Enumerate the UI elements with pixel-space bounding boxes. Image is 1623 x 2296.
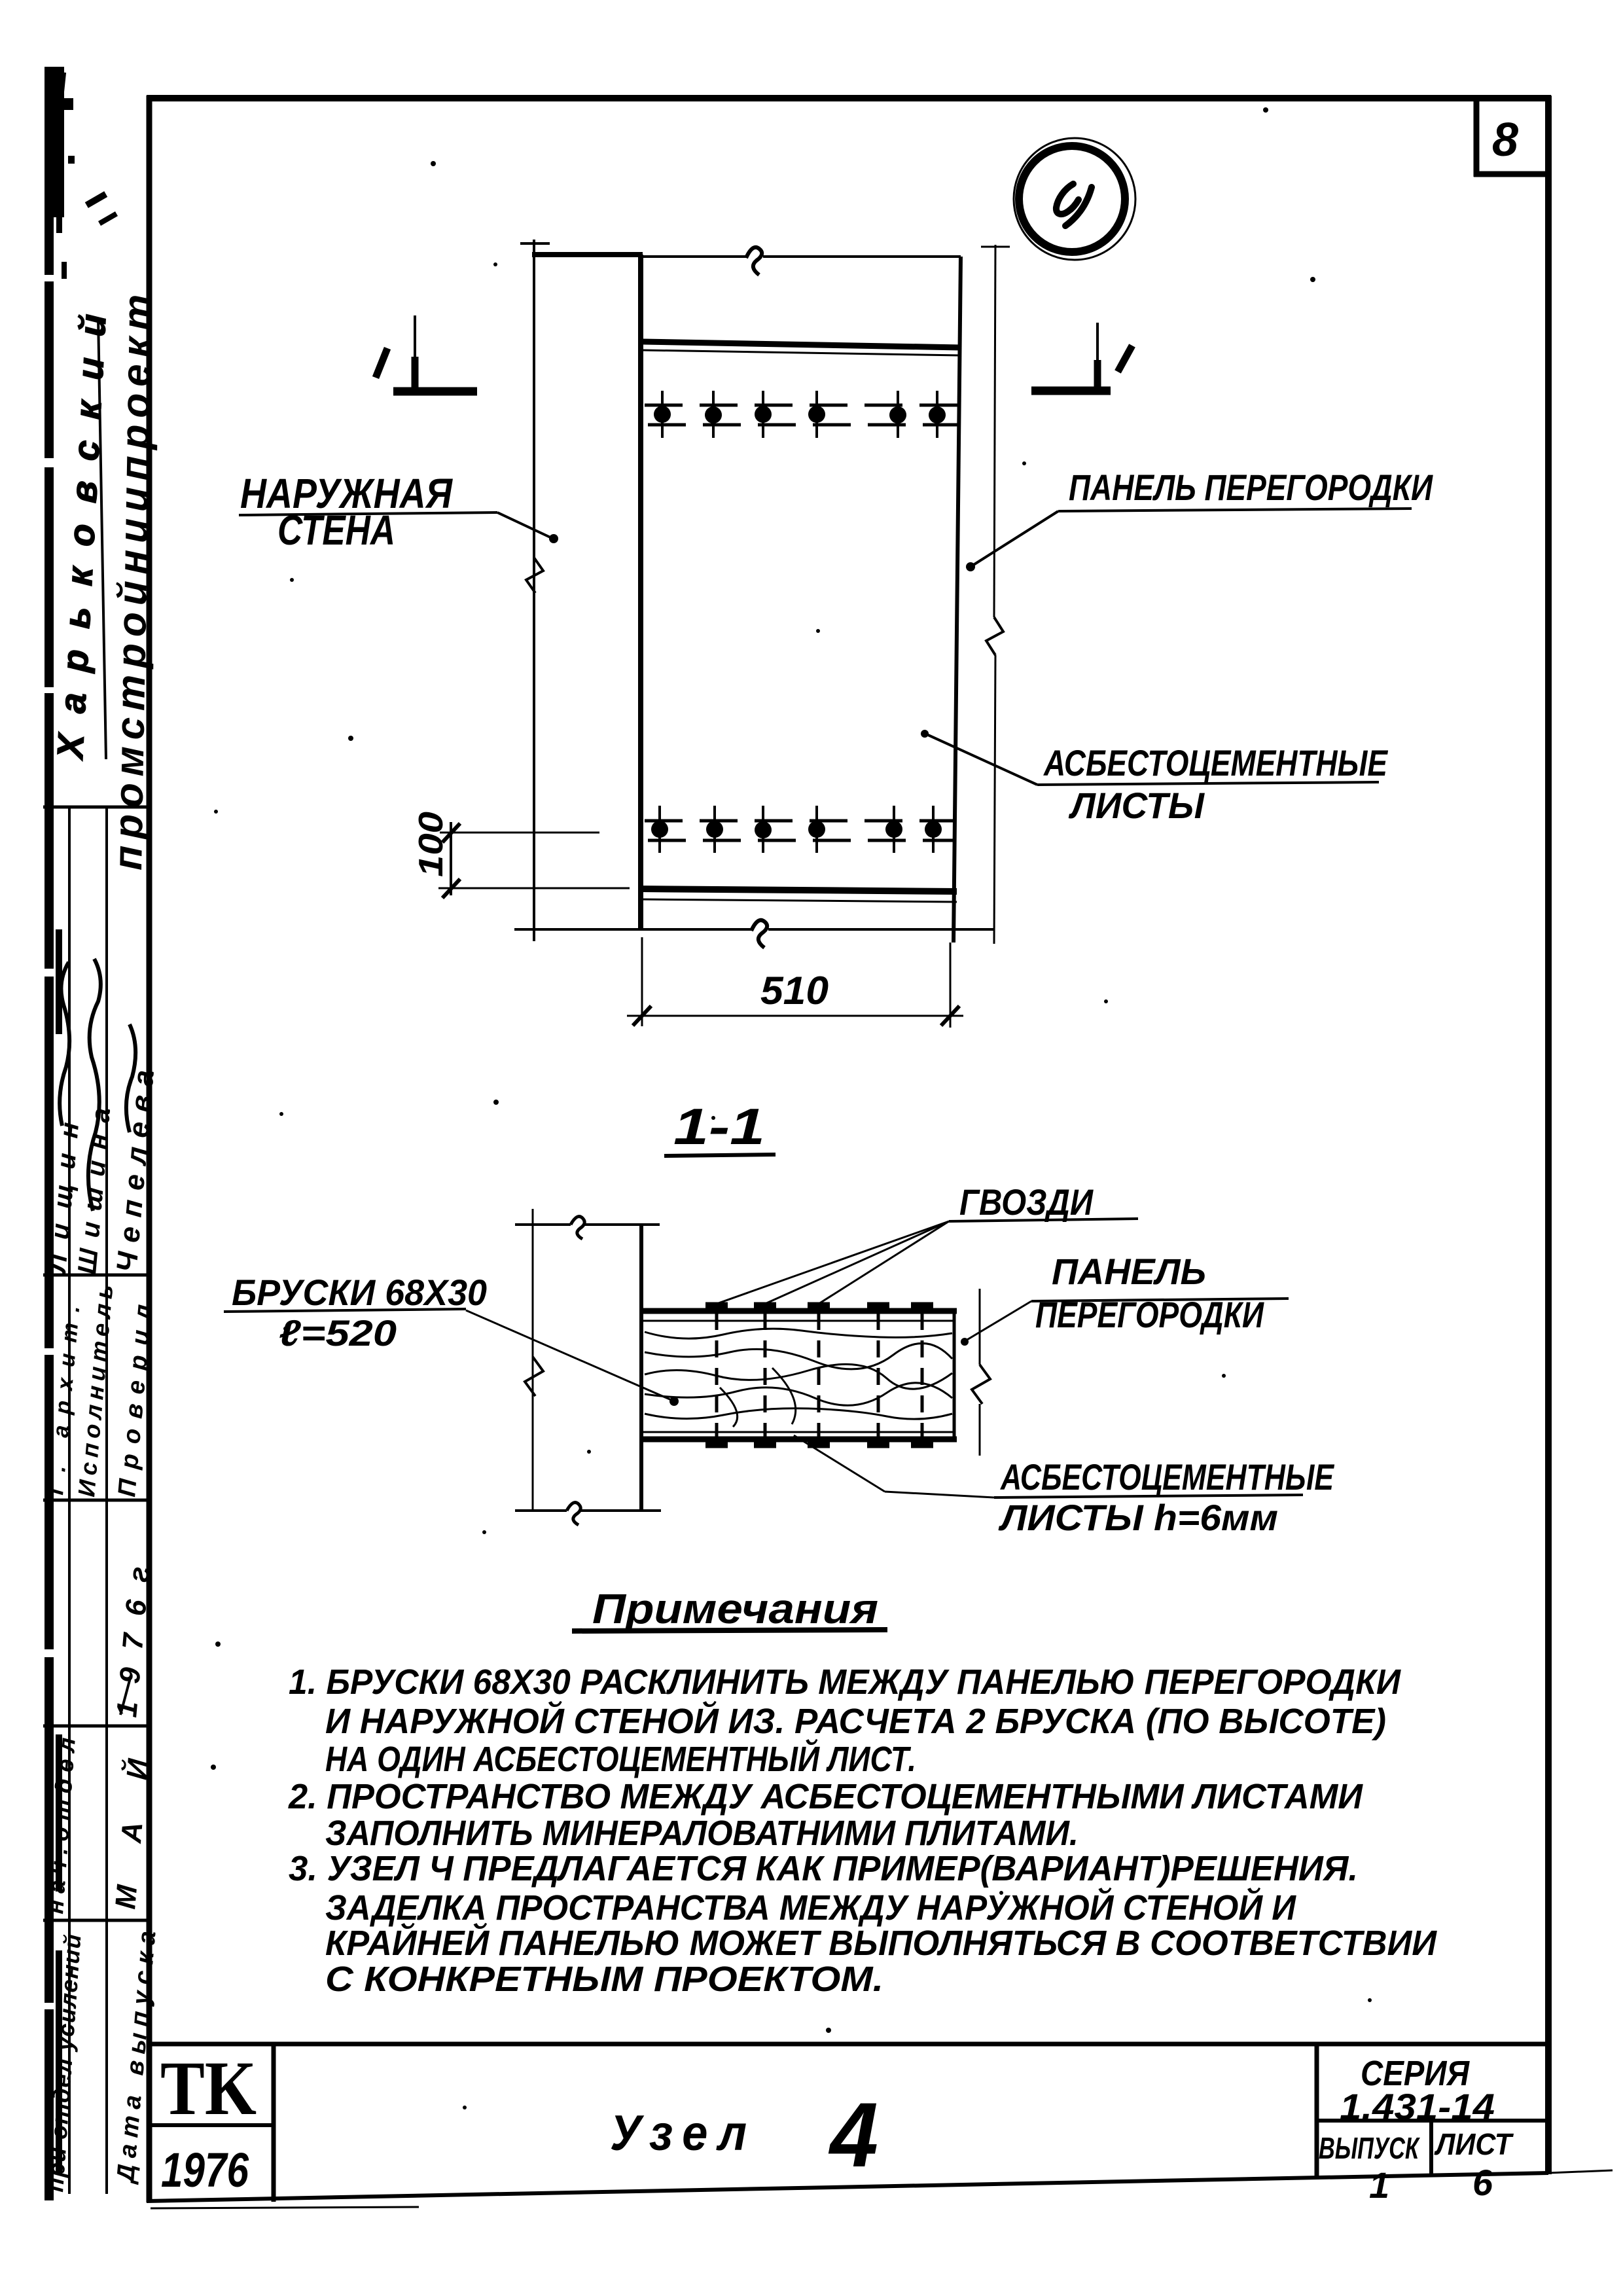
svg-text:ℓ=520: ℓ=520 (279, 1312, 397, 1354)
svg-text:ЛИСТЫ: ЛИСТЫ (1068, 785, 1205, 826)
svg-text:4: 4 (828, 2083, 878, 2186)
svg-text:1976: 1976 (161, 2143, 249, 2197)
svg-text:НА ОДИН АСБЕСТОЦЕМЕНТНЫЙ ЛИСТ.: НА ОДИН АСБЕСТОЦЕМЕНТНЫЙ ЛИСТ. (325, 1738, 916, 1779)
svg-text:100: 100 (412, 812, 450, 877)
svg-text:ЛИСТ: ЛИСТ (1434, 2127, 1514, 2161)
svg-text:промстройниипроект: промстройниипроект (105, 294, 160, 870)
svg-text:КРАЙНЕЙ ПАНЕЛЬЮ МОЖЕТ ВЫПОЛНЯТ: КРАЙНЕЙ ПАНЕЛЬЮ МОЖЕТ ВЫПОЛНЯТЬСЯ В СООТ… (325, 1922, 1437, 1963)
svg-text:TK: TK (160, 2045, 257, 2131)
svg-text:1. БРУСКИ 68Х30 РАСКЛИНИТЬ МЕЖ: 1. БРУСКИ 68Х30 РАСКЛИНИТЬ МЕЖДУ ПАНЕЛЬЮ… (289, 1662, 1401, 1702)
svg-text:2. ПРОСТРАНСТВО МЕЖДУ АСБЕСТОЦ: 2. ПРОСТРАНСТВО МЕЖДУ АСБЕСТОЦЕМЕНТНЫМИ … (288, 1777, 1363, 1816)
svg-text:ПАНЕЛЬ ПЕРЕГОРОДКИ: ПАНЕЛЬ ПЕРЕГОРОДКИ (1069, 467, 1433, 508)
svg-text:АСБЕСТОЦЕМЕНТНЫЕ: АСБЕСТОЦЕМЕНТНЫЕ (999, 1456, 1334, 1498)
svg-text:8: 8 (1492, 114, 1518, 166)
svg-text:АСБЕСТОЦЕМЕНТНЫЕ: АСБЕСТОЦЕМЕНТНЫЕ (1043, 742, 1388, 783)
svg-text:Исполнитель: Исполнитель (73, 1283, 118, 1498)
svg-text:ЗАДЕЛКА ПРОСТРАНСТВА МЕЖДУ НАР: ЗАДЕЛКА ПРОСТРАНСТВА МЕЖДУ НАРУЖНОЙ СТЕН… (325, 1887, 1296, 1928)
svg-text:ПАНЕЛЬ: ПАНЕЛЬ (1052, 1251, 1206, 1292)
svg-text:И НАРУЖНОЙ СТЕНОЙ ИЗ. РАСЧЕТА: И НАРУЖНОЙ СТЕНОЙ ИЗ. РАСЧЕТА 2 БРУСКА (… (325, 1700, 1386, 1741)
svg-text:Дата выпуска: Дата выпуска (112, 1930, 162, 2185)
svg-text:1: 1 (1369, 2164, 1389, 2206)
svg-text:Примечания: Примечания (592, 1585, 878, 1632)
svg-text:510: 510 (760, 969, 829, 1013)
svg-text:ГВОЗДИ: ГВОЗДИ (959, 1181, 1094, 1223)
svg-text:3. УЗЕЛ Ч ПРЕДЛАГАЕТСЯ КАК ПРИ: 3. УЗЕЛ Ч ПРЕДЛАГАЕТСЯ КАК ПРИМЕР(ВАРИАН… (289, 1849, 1358, 1888)
svg-text:1-1: 1-1 (673, 1098, 765, 1155)
svg-text:Чепелева: Чепелева (111, 1069, 160, 1274)
svg-text:Узел: Узел (610, 2106, 757, 2161)
svg-text:1.431-14: 1.431-14 (1340, 2086, 1495, 2127)
svg-text:С КОНКРЕТНЫМ ПРОЕКТОМ.: С КОНКРЕТНЫМ ПРОЕКТОМ. (325, 1960, 883, 1999)
svg-text:БРУСКИ 68Х30: БРУСКИ 68Х30 (232, 1272, 487, 1313)
svg-text:ВЫПУСК: ВЫПУСК (1319, 2131, 1420, 2165)
svg-text:6: 6 (1472, 2162, 1493, 2203)
svg-text:ЗАПОЛНИТЬ МИНЕРАЛОВАТНИМИ ПЛИТ: ЗАПОЛНИТЬ МИНЕРАЛОВАТНИМИ ПЛИТАМИ. (325, 1814, 1079, 1853)
svg-text:ЛИСТЫ h=6мм: ЛИСТЫ h=6мм (998, 1497, 1278, 1538)
